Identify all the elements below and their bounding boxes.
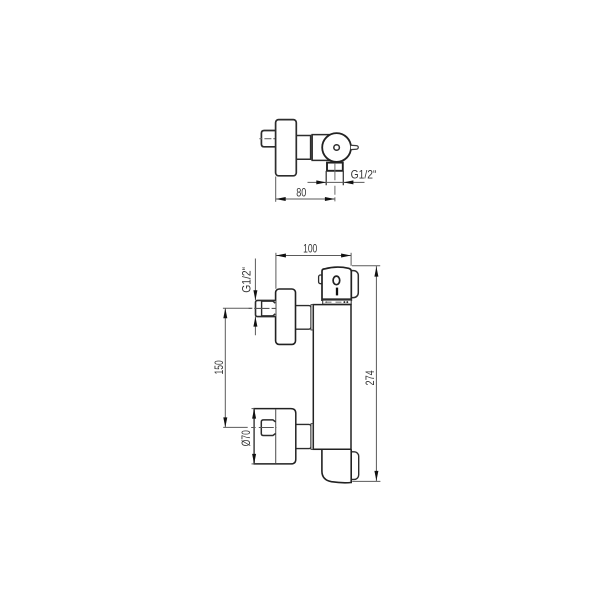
svg-text:G1/2“: G1/2“ [239, 267, 253, 293]
svg-text:G1/2“: G1/2“ [351, 167, 377, 181]
svg-text:150: 150 [212, 360, 226, 374]
svg-text:80: 80 [296, 185, 306, 199]
svg-text:274: 274 [363, 370, 377, 385]
svg-text:Ø70: Ø70 [239, 430, 253, 446]
svg-text:100: 100 [303, 242, 317, 256]
